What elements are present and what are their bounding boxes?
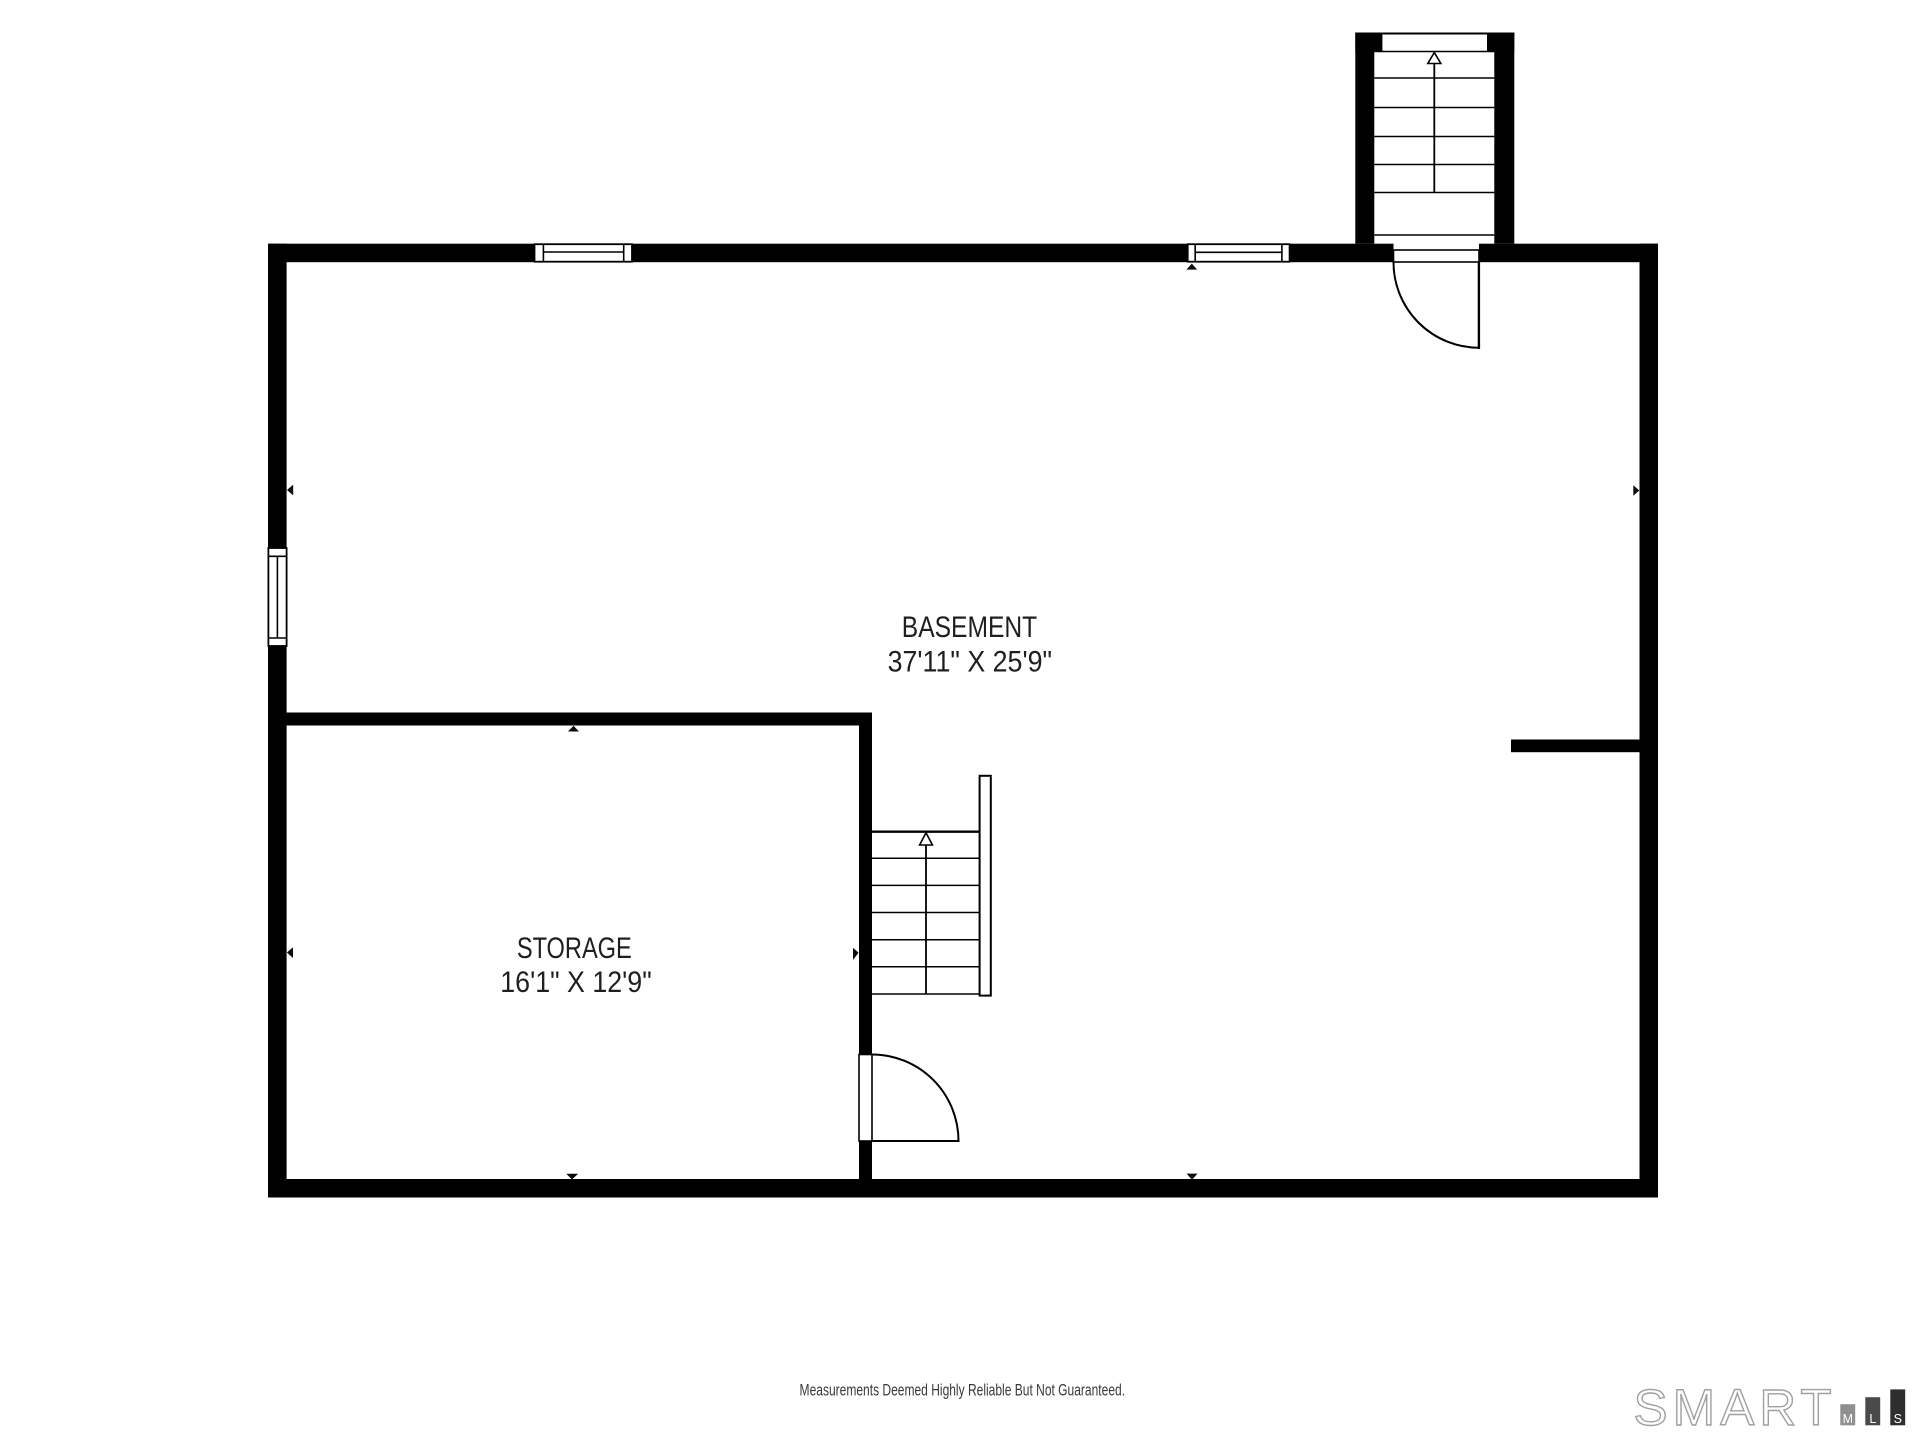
svg-text:16'1" X 12'9": 16'1" X 12'9" xyxy=(500,965,651,998)
svg-text:STORAGE: STORAGE xyxy=(517,931,632,964)
svg-text:S: S xyxy=(1894,1412,1902,1426)
svg-text:37'11" X 25'9": 37'11" X 25'9" xyxy=(888,644,1052,677)
svg-text:Measurements Deemed Highly Rel: Measurements Deemed Highly Reliable But … xyxy=(800,1382,1125,1400)
svg-text:BASEMENT: BASEMENT xyxy=(902,610,1037,644)
svg-text:SMART: SMART xyxy=(1634,1379,1837,1436)
svg-text:M: M xyxy=(1843,1412,1853,1426)
svg-text:L: L xyxy=(1869,1412,1876,1426)
